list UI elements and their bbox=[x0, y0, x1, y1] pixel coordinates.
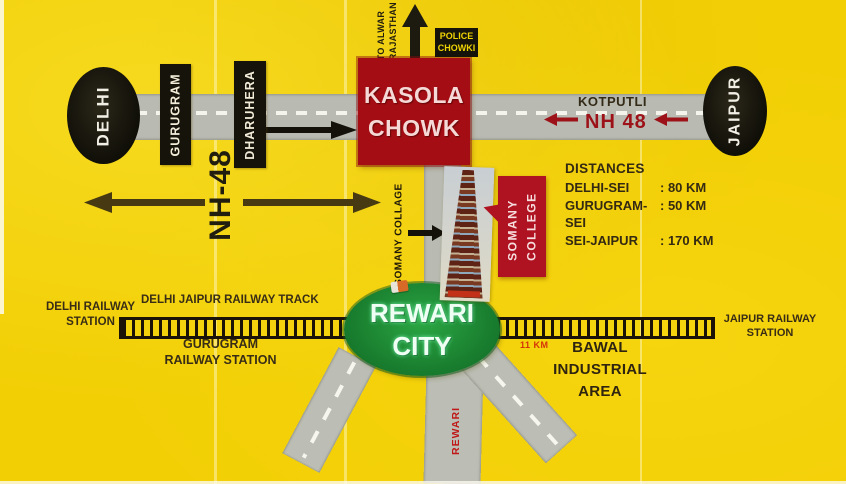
delhi-railway-station-label: DELHI RAILWAY STATION bbox=[33, 300, 148, 330]
delhi-oval: DELHI bbox=[67, 67, 140, 164]
arrow-right-icon bbox=[243, 192, 381, 213]
gurugram-sign: GURUGRAM bbox=[160, 64, 191, 165]
nh48-left-arrow-icon bbox=[544, 113, 578, 131]
rewari-road-label: REWARI bbox=[444, 398, 468, 464]
road-direction-arrow-icon bbox=[263, 120, 357, 140]
distance-value: : 170 KM bbox=[660, 232, 713, 250]
dharuhera-sign: DHARUHERA bbox=[234, 61, 266, 168]
arrow-left-icon bbox=[84, 192, 205, 213]
gurugram-railway-station-label: GURUGRAM RAILWAY STATION bbox=[148, 336, 293, 369]
vehicle-image bbox=[390, 280, 408, 293]
kasola-chowk-label: KASOLA CHOWK bbox=[364, 79, 464, 143]
nh48-right-arrow-icon bbox=[654, 113, 688, 131]
to-alwar-label: TO ALWAR RAJASTHAN bbox=[370, 0, 404, 62]
jaipur-label: JAIPUR bbox=[726, 76, 744, 147]
rewari-city-label: REWARI CITY bbox=[370, 297, 474, 362]
somany-arrow-icon bbox=[408, 224, 446, 242]
police-chowki-sign: POLICE CHOWKI bbox=[435, 28, 478, 57]
nh48-road-marker: NH 48 bbox=[544, 111, 696, 133]
distance-label: SEI-JAIPUR bbox=[565, 232, 660, 250]
route-map: DELHI JAIPUR GURUGRAM DHARUHERA NH-48 KA… bbox=[0, 0, 846, 484]
road-center-line bbox=[302, 361, 356, 458]
somany-college-callout: SOMANY COLLEGE bbox=[498, 176, 546, 277]
distances-panel: DISTANCES DELHI-SEI : 80 KM GURUGRAM-SEI… bbox=[565, 161, 770, 249]
kasola-chowk-sign: KASOLA CHOWK bbox=[358, 58, 470, 165]
paper-edge bbox=[0, 0, 4, 314]
gurugram-label: GURUGRAM bbox=[169, 73, 183, 156]
jaipur-oval: JAIPUR bbox=[703, 66, 767, 156]
police-chowki-label: POLICE CHOWKI bbox=[438, 31, 476, 54]
kotputli-label: KOTPUTLI bbox=[578, 94, 647, 109]
jaipur-railway-station-label: JAIPUR RAILWAY STATION bbox=[716, 312, 824, 341]
distance-row: GURUGRAM-SEI : 50 KM bbox=[565, 197, 770, 232]
delhi-label: DELHI bbox=[94, 85, 114, 146]
bawal-industrial-area-label: BAWAL INDUSTRIAL AREA bbox=[534, 337, 666, 402]
distance-label: GURUGRAM-SEI bbox=[565, 197, 660, 232]
somany-college-label: SOMANY COLLEGE bbox=[503, 192, 540, 261]
dharuhera-label: DHARUHERA bbox=[243, 70, 257, 160]
distance-label: DELHI-SEI bbox=[565, 179, 660, 197]
left-fan-road bbox=[282, 347, 375, 473]
nh48-road-label: NH 48 bbox=[585, 111, 647, 134]
college-tower-image bbox=[444, 169, 488, 298]
distance-row: DELHI-SEI : 80 KM bbox=[565, 179, 770, 197]
railway-track-label: DELHI JAIPUR RAILWAY TRACK bbox=[141, 293, 381, 308]
college-tower-signboard bbox=[448, 290, 480, 297]
distance-row: SEI-JAIPUR : 170 KM bbox=[565, 232, 770, 250]
railway-track-right bbox=[479, 317, 715, 339]
somany-collage-road-label: SOMANY COLLAGE bbox=[386, 181, 412, 287]
distances-title: DISTANCES bbox=[565, 161, 770, 176]
up-arrow-icon bbox=[402, 4, 428, 60]
college-building-photo bbox=[440, 166, 495, 302]
distance-value: : 80 KM bbox=[660, 179, 706, 197]
distance-value: : 50 KM bbox=[660, 197, 706, 232]
